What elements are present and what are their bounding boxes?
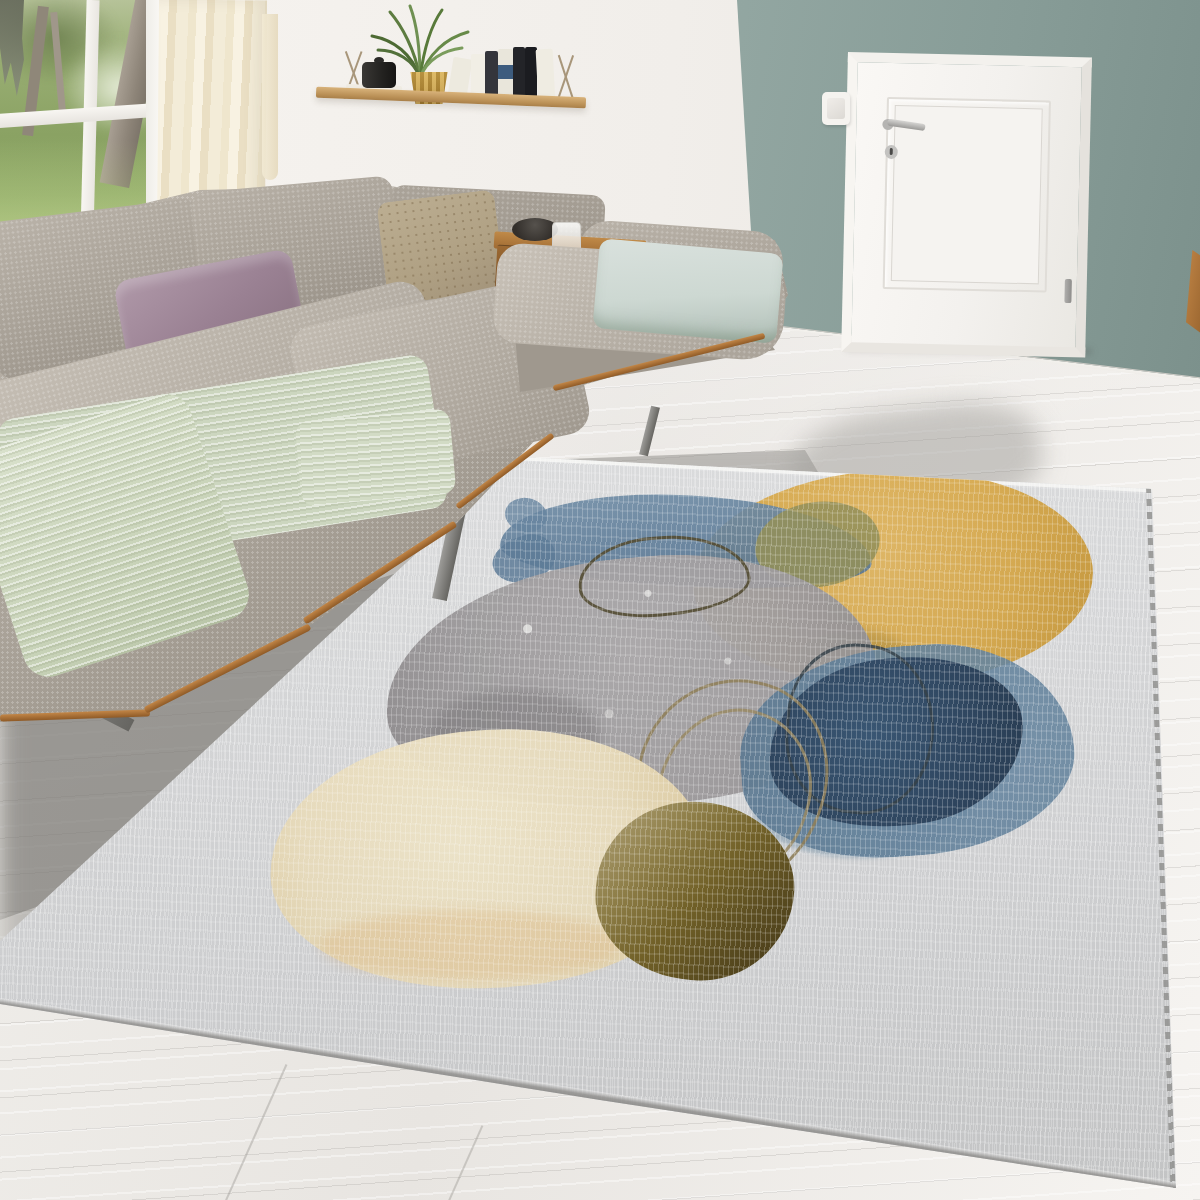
door-hinge (1064, 279, 1072, 303)
curtain-fold (262, 14, 278, 180)
living-room-photo (0, 0, 1200, 1200)
knit-throw-fold (295, 408, 457, 506)
door-panel-inner (891, 105, 1043, 284)
light-switch-rocker (827, 98, 845, 119)
rug-shape-cream-stain (320, 910, 620, 980)
throw-pillow-mint (592, 238, 783, 344)
interior-door (841, 52, 1092, 357)
